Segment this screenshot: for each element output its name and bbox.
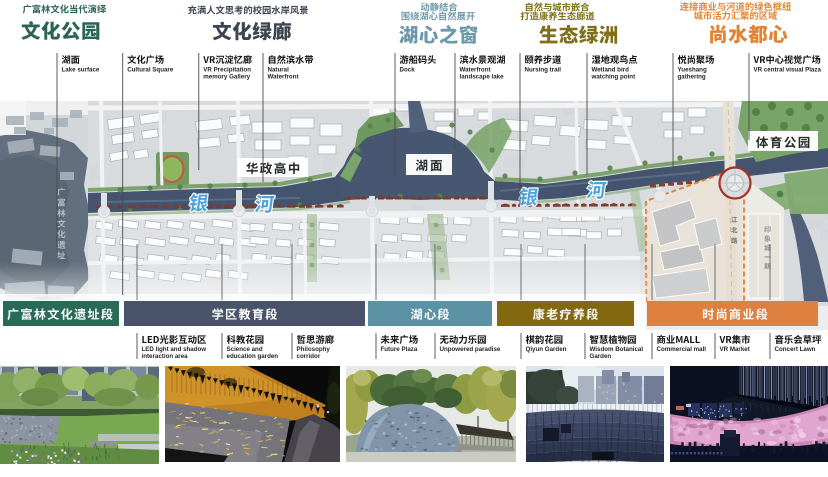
svg-text:Concert Lawn: Concert Lawn <box>775 346 816 353</box>
svg-text:Future Plaza: Future Plaza <box>381 346 418 353</box>
svg-text:gathering: gathering <box>678 74 706 81</box>
svg-text:Wetland bird: Wetland bird <box>592 67 630 74</box>
svg-text:Philosophy: Philosophy <box>297 346 331 353</box>
svg-text:LED light and shadow: LED light and shadow <box>142 346 207 353</box>
svg-text:corridor: corridor <box>297 353 321 360</box>
svg-text:Commercial mall: Commercial mall <box>657 346 707 353</box>
svg-text:interaction area: interaction area <box>142 353 189 360</box>
svg-text:Dock: Dock <box>400 67 416 74</box>
svg-text:VR central visual Plaza: VR central visual Plaza <box>754 67 822 74</box>
svg-text:Nursing trail: Nursing trail <box>525 67 562 74</box>
svg-text:education garden: education garden <box>227 353 279 360</box>
svg-text:VR Precipitation: VR Precipitation <box>203 67 251 74</box>
svg-text:Unpowered paradise: Unpowered paradise <box>440 346 501 353</box>
svg-text:Cultural Square: Cultural Square <box>127 67 174 74</box>
svg-text:landscape lake: landscape lake <box>460 74 505 81</box>
svg-text:memory Gallery: memory Gallery <box>203 74 250 81</box>
svg-text:Wisdom Botanical: Wisdom Botanical <box>590 346 644 353</box>
svg-text:Natural: Natural <box>268 67 290 74</box>
svg-text:watching point: watching point <box>591 74 636 81</box>
svg-text:Garden: Garden <box>590 353 612 360</box>
svg-text:Yueshang: Yueshang <box>678 67 707 74</box>
svg-text:Qiyun Garden: Qiyun Garden <box>526 346 567 353</box>
svg-text:Waterfront: Waterfront <box>460 67 491 74</box>
svg-text:Science and: Science and <box>227 346 263 353</box>
svg-text:Lake surface: Lake surface <box>62 67 100 74</box>
svg-text:Waterfront: Waterfront <box>268 74 299 81</box>
svg-text:VR Market: VR Market <box>720 346 750 353</box>
